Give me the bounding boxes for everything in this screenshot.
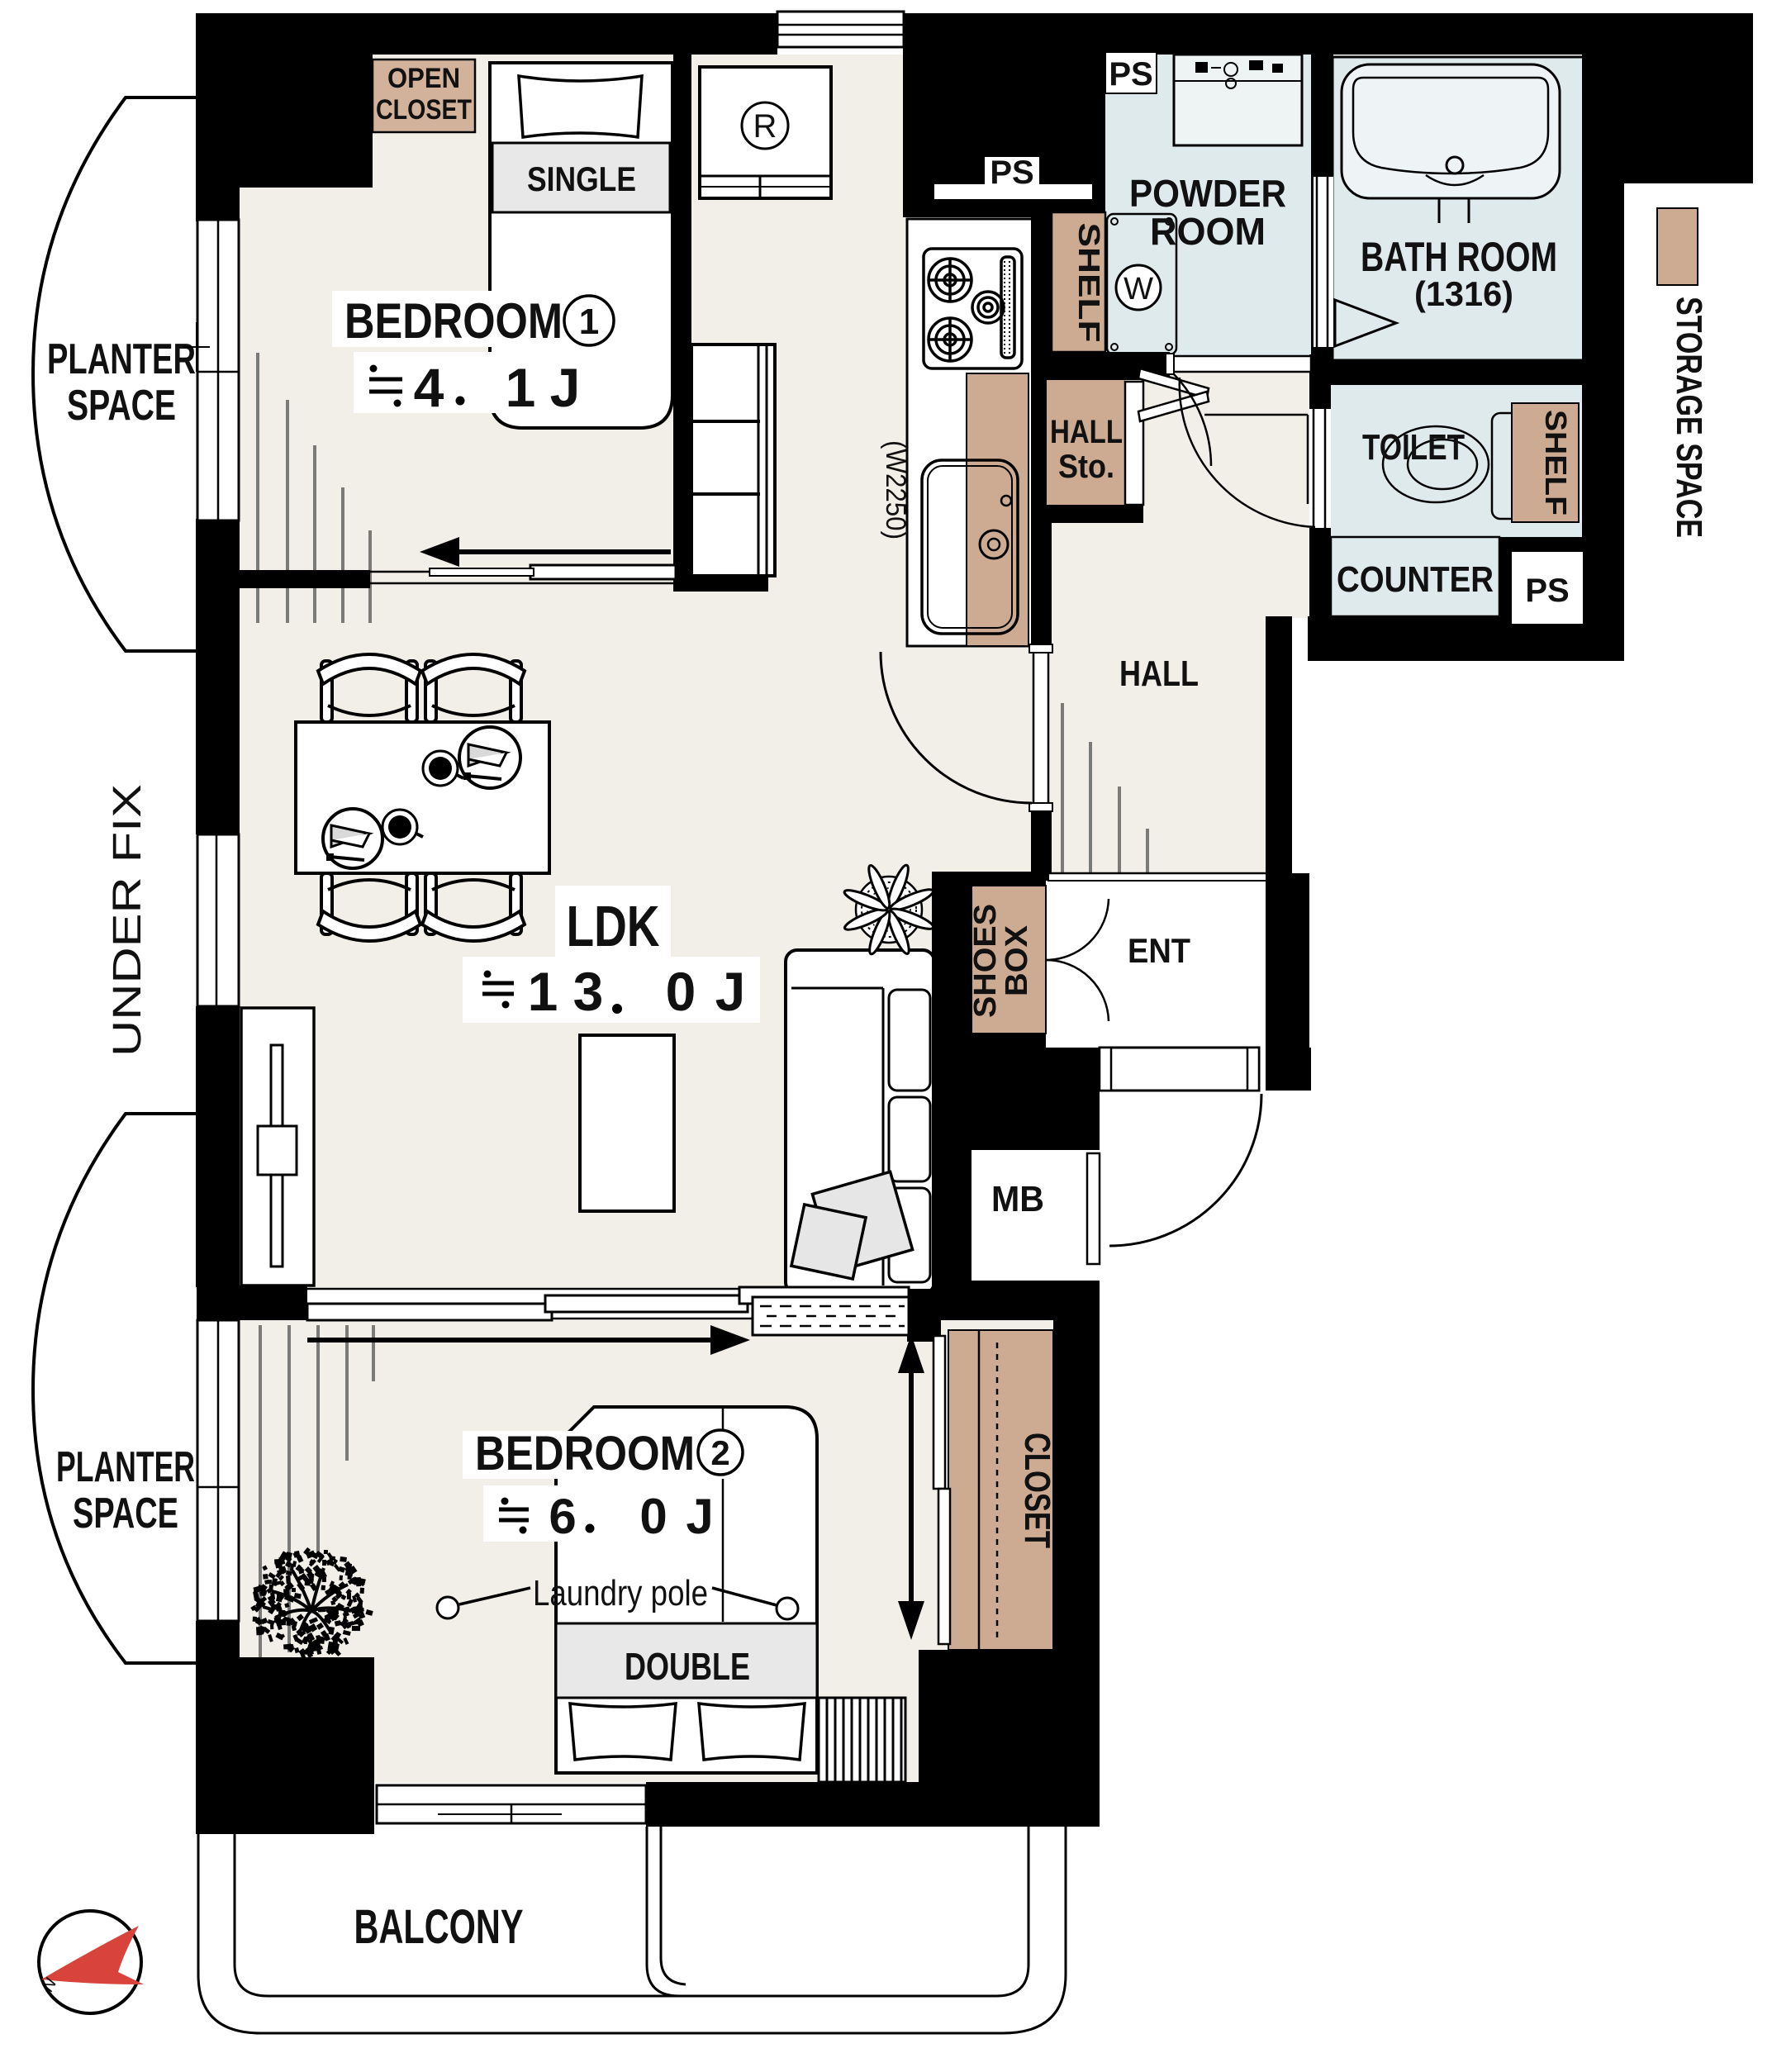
svg-text:1: 1 bbox=[579, 302, 599, 342]
svg-text:DOUBLE: DOUBLE bbox=[625, 1645, 750, 1688]
svg-text:J: J bbox=[715, 961, 746, 1022]
svg-text:J: J bbox=[550, 357, 581, 418]
svg-text:BALCONY: BALCONY bbox=[354, 1900, 524, 1954]
svg-text:MB: MB bbox=[991, 1179, 1044, 1219]
svg-text:J: J bbox=[686, 1489, 713, 1544]
svg-text:BOX: BOX bbox=[1000, 924, 1034, 996]
svg-text:SINGLE: SINGLE bbox=[527, 159, 636, 198]
svg-text:HALL: HALL bbox=[1119, 653, 1199, 694]
svg-text:SPACE: SPACE bbox=[67, 382, 176, 430]
svg-text:UNDER FIX: UNDER FIX bbox=[106, 784, 150, 1057]
svg-text:CLOSET: CLOSET bbox=[376, 94, 472, 126]
svg-text:BEDROOM: BEDROOM bbox=[344, 293, 563, 349]
svg-text:(1316): (1316) bbox=[1414, 274, 1513, 313]
svg-text:BEDROOM: BEDROOM bbox=[475, 1427, 695, 1480]
svg-text:PLANTER: PLANTER bbox=[56, 1443, 195, 1491]
svg-text:(W2250): (W2250) bbox=[880, 440, 911, 539]
svg-text:ROOM: ROOM bbox=[1150, 210, 1266, 253]
svg-text:CLOSET: CLOSET bbox=[1017, 1433, 1057, 1548]
svg-text:3: 3 bbox=[573, 961, 604, 1022]
svg-text:BATH ROOM: BATH ROOM bbox=[1361, 234, 1557, 280]
svg-text:SHOES: SHOES bbox=[968, 904, 1003, 1018]
svg-text:LDK: LDK bbox=[567, 894, 660, 958]
svg-text:0: 0 bbox=[666, 961, 696, 1022]
svg-text:6: 6 bbox=[549, 1489, 576, 1544]
svg-text:PS: PS bbox=[1109, 56, 1152, 93]
svg-text:2: 2 bbox=[710, 1433, 729, 1472]
svg-text:Sto.: Sto. bbox=[1058, 449, 1114, 485]
svg-text:SHELF: SHELF bbox=[1539, 410, 1573, 516]
svg-text:SPACE: SPACE bbox=[73, 1490, 178, 1537]
svg-text:4: 4 bbox=[414, 357, 444, 418]
svg-text:1: 1 bbox=[506, 357, 536, 418]
svg-text:0: 0 bbox=[639, 1489, 667, 1544]
svg-text:ENT: ENT bbox=[1128, 931, 1190, 970]
svg-text:HALL: HALL bbox=[1050, 414, 1123, 450]
svg-text:POWDER: POWDER bbox=[1129, 172, 1286, 215]
svg-text:SHELF: SHELF bbox=[1072, 223, 1106, 343]
svg-text:PLANTER: PLANTER bbox=[47, 335, 196, 383]
svg-text:STORAGE SPACE: STORAGE SPACE bbox=[1669, 297, 1709, 538]
svg-text:1: 1 bbox=[528, 961, 558, 1022]
svg-text:OPEN: OPEN bbox=[387, 63, 460, 94]
svg-text:R: R bbox=[753, 108, 777, 145]
svg-text:COUNTER: COUNTER bbox=[1337, 559, 1494, 600]
svg-text:PS: PS bbox=[1525, 573, 1569, 609]
svg-text:PS: PS bbox=[990, 154, 1033, 191]
svg-text:TOILET: TOILET bbox=[1362, 427, 1465, 468]
svg-text:W: W bbox=[1124, 272, 1153, 307]
svg-text:Laundry pole: Laundry pole bbox=[533, 1573, 708, 1613]
